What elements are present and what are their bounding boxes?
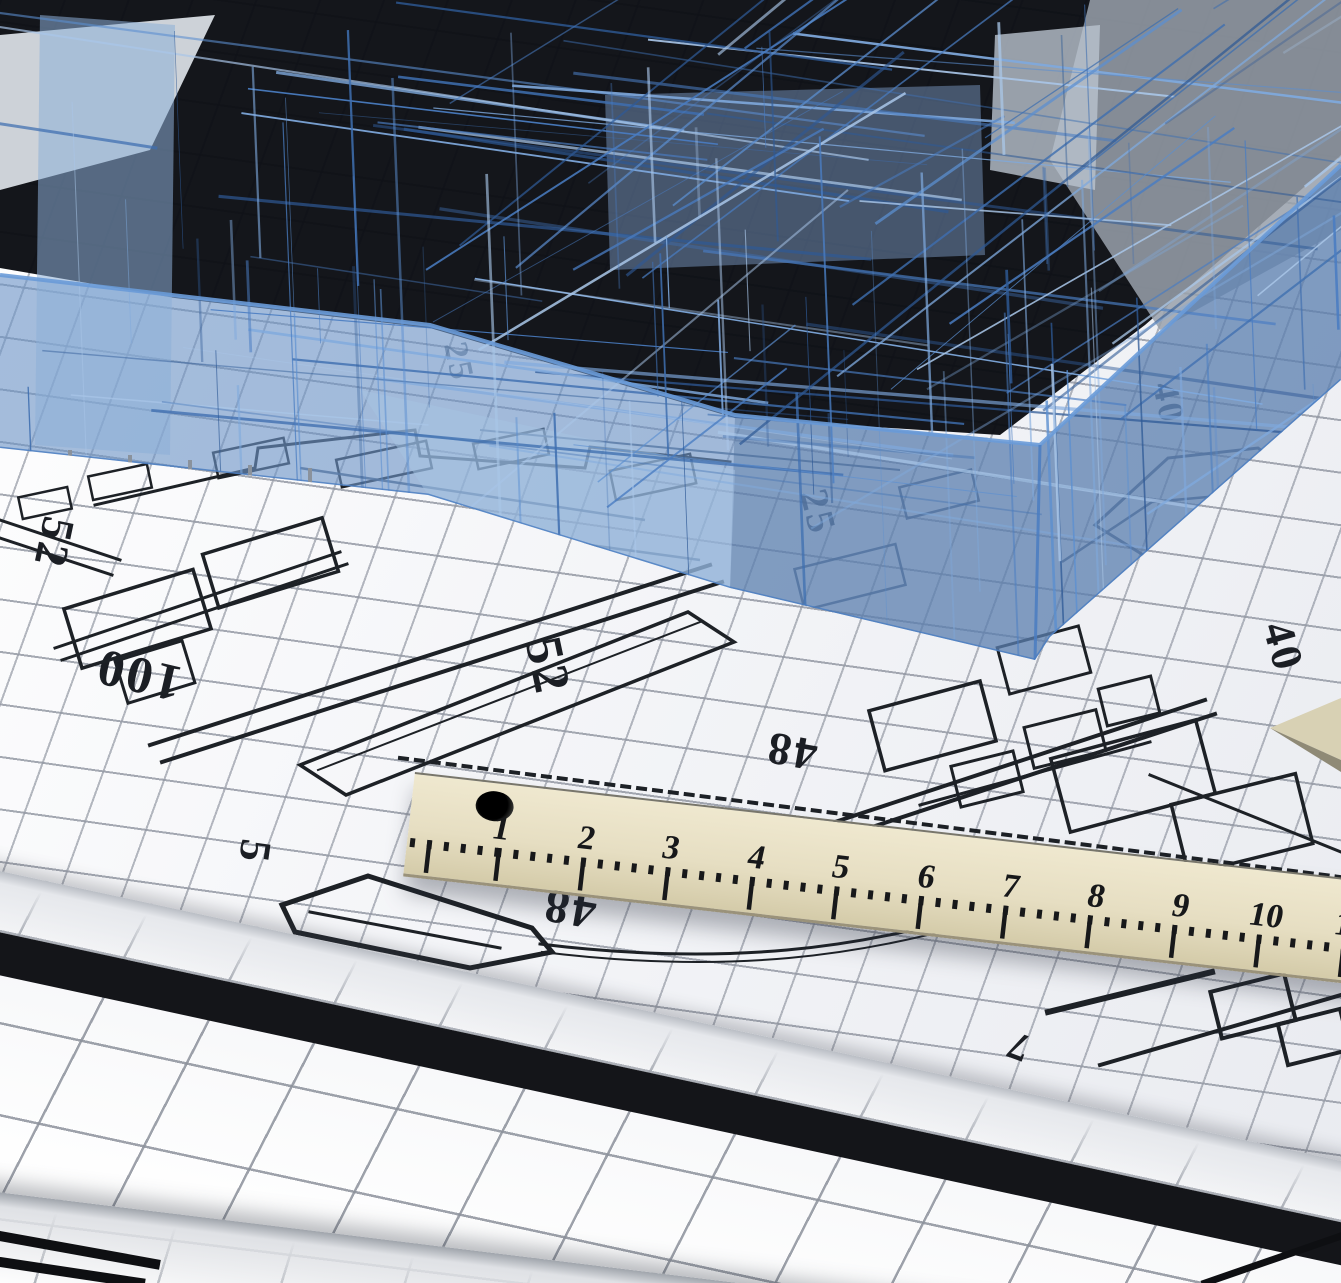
ruler-number: 5: [828, 848, 853, 887]
ruler-number: 4: [744, 839, 769, 878]
ruler-number: 11: [1330, 905, 1341, 946]
ruler-number: 10: [1245, 896, 1287, 937]
ruler-number: 9: [1168, 887, 1193, 926]
ruler-number: 6: [914, 858, 939, 897]
ruler-number: 3: [658, 829, 683, 868]
blueprint-wireframe-building-photo: 52 100 25 25 52 48 40 40 5 48 7: [0, 0, 1341, 1283]
ruler-number: 7: [998, 868, 1023, 907]
ruler-number: 2: [574, 819, 599, 858]
ruler-number: 8: [1084, 877, 1109, 916]
glass-slab-left: [35, 15, 175, 455]
set-square-tip: [1270, 698, 1341, 772]
wireframe-building-model: [0, 0, 1341, 837]
